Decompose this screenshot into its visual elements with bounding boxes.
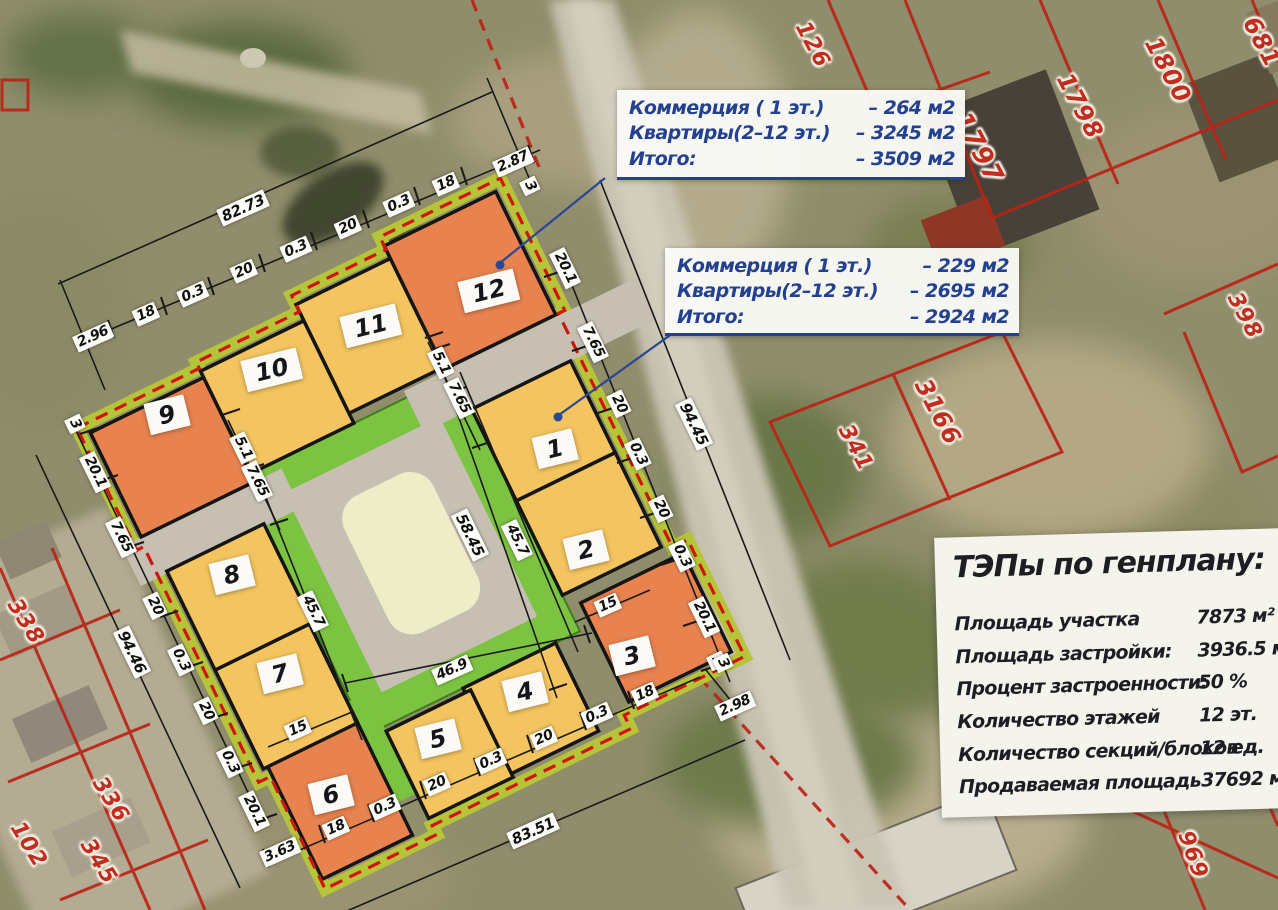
callout-row: Квартиры(2–12 эт.) – 3245 м2 [629,121,955,146]
callout-label: Квартиры(2–12 эт.) [629,121,830,146]
callout-label: Итого: [677,305,744,330]
tep-label: Продаваемая площадь [959,765,1202,804]
callout-row: Квартиры(2–12 эт.) – 2695 м2 [677,279,1009,304]
tep-value: 37692 м² [1201,762,1278,797]
callout-value: – 2695 м2 [910,279,1009,304]
tep-value: 7873 м² [1196,599,1275,634]
genplan-screenshot: 1 2 3 4 5 6 7 8 9 10 11 12 2.96 18 0.3 2… [0,0,1278,910]
tep-value: 50 % [1198,666,1248,700]
tep-value: 12 эт. [1199,698,1258,732]
callout-building-a: Коммерция ( 1 эт.) – 264 м2 Квартиры(2–1… [617,90,965,180]
callout-value: – 3245 м2 [856,121,955,146]
callout-label: Итого: [629,147,696,172]
callout-label: Коммерция ( 1 эт.) [629,96,824,121]
callout-row: Итого: – 3509 м2 [629,147,955,172]
leader-dot-block12 [496,261,505,270]
callout-label: Коммерция ( 1 эт.) [677,254,872,279]
tep-value: 3936.5 м² [1197,632,1278,667]
callout-value: – 2924 м2 [910,305,1009,330]
callout-row: Коммерция ( 1 эт.) – 229 м2 [677,254,1009,279]
callout-row: Итого: – 2924 м2 [677,305,1009,330]
leader-dot-block1 [554,413,563,422]
tep-table: ТЭПы по генплану: Площадь участка 7873 м… [934,528,1278,818]
tep-label: Площадь участка [954,603,1140,641]
tep-value: 12 ед. [1200,730,1265,764]
tep-title: ТЭПы по генплану: [953,542,1272,584]
callout-value: – 3509 м2 [856,147,955,172]
callout-row: Коммерция ( 1 эт.) – 264 м2 [629,96,955,121]
callout-building-b: Коммерция ( 1 эт.) – 229 м2 Квартиры(2–1… [665,248,1019,336]
callout-value: – 229 м2 [923,254,1009,279]
callout-label: Квартиры(2–12 эт.) [677,279,878,304]
callout-value: – 264 м2 [869,96,955,121]
